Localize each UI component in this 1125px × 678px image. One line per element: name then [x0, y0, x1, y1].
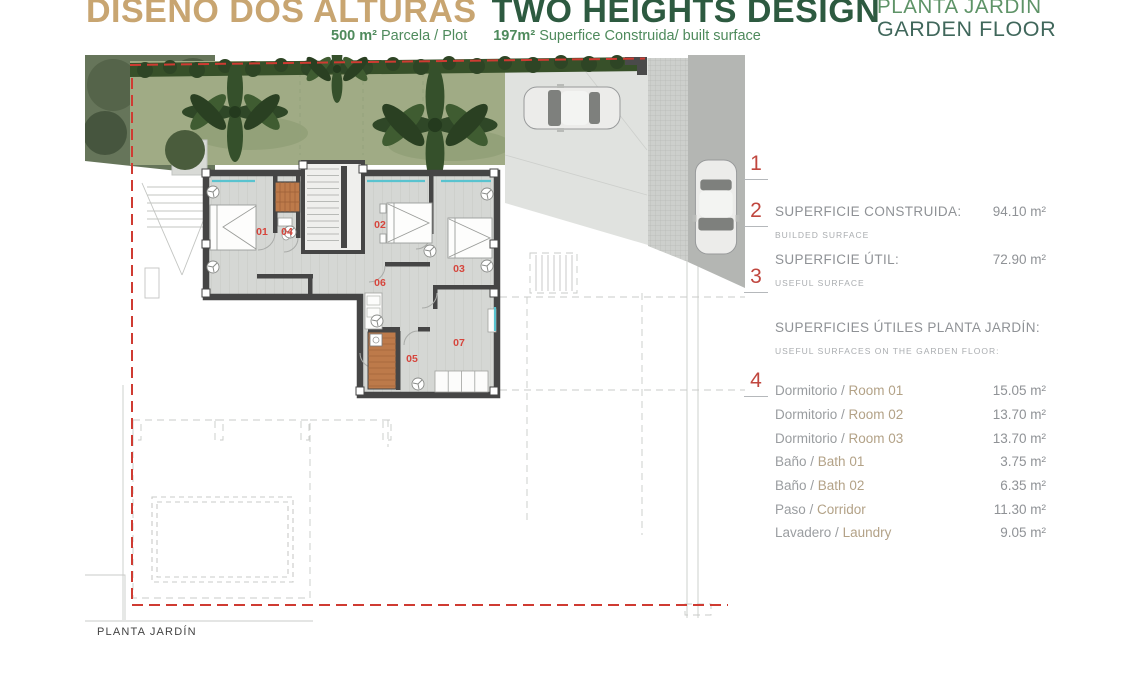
index-marker-2: 2: [744, 200, 768, 227]
car-parked-side: [692, 160, 739, 254]
useful-surface-label: SUPERFICIE ÚTIL:: [775, 252, 899, 267]
room-label-01: 01: [256, 226, 268, 238]
room-value-4: 3.75 m²: [1000, 454, 1046, 469]
built-surface-sublabel: BUILDED SURFACE: [775, 230, 869, 240]
bed-room-02: [380, 203, 432, 243]
house: 01 04 02 03 06 05 07: [202, 161, 498, 395]
room-row-1: Dormitorio / Room 01: [775, 383, 903, 398]
room-label-03: 03: [453, 263, 465, 275]
built-surface-label: SUPERFICIE CONSTRUIDA:: [775, 204, 962, 219]
room-value-5: 6.35 m²: [1000, 478, 1046, 493]
room-row-7: Lavadero / Laundry: [775, 525, 891, 540]
room-row-5: Baño / Bath 02: [775, 478, 864, 493]
plan-caption: PLANTA JARDÍN: [97, 626, 197, 638]
bed-room-03: [448, 218, 492, 258]
room-row-2: Dormitorio / Room 02: [775, 407, 903, 422]
room-value-2: 13.70 m²: [993, 407, 1046, 422]
title-english: TWO HEIGHTS DESIGN: [492, 0, 881, 31]
room-row-4: Baño / Bath 01: [775, 454, 864, 469]
room-label-06: 06: [374, 277, 386, 289]
built-size: 197m² Superfice Construida/ built surfac…: [493, 28, 761, 44]
room-label-04: 04: [281, 226, 293, 238]
floor-title: PLANTA JARDIN GARDEN FLOOR: [877, 0, 1056, 40]
laundry-floor: [368, 332, 396, 389]
plot-size: 500 m² Parcela / Plot: [331, 28, 467, 44]
title-spanish: DISEÑO DOS ALTURAS: [86, 0, 477, 31]
room-label-07: 07: [453, 337, 465, 349]
room-value-3: 13.70 m²: [993, 431, 1046, 446]
section-title: SUPERFICIES ÚTILES PLANTA JARDÍN:: [775, 320, 1040, 335]
room-row-3: Dormitorio / Room 03: [775, 431, 903, 446]
car-parked-top: [524, 84, 620, 132]
useful-surface-value: 72.90 m²: [993, 252, 1046, 267]
side-stair: [536, 255, 572, 291]
room-value-6: 11.30 m²: [994, 502, 1046, 517]
bed-room-01: [210, 205, 256, 250]
plan-sheet: DISEÑO DOS ALTURAS TWO HEIGHTS DESIGN 50…: [0, 0, 1125, 678]
index-marker-1: 1: [744, 153, 768, 180]
floor-title-en: GARDEN FLOOR: [877, 18, 1056, 41]
room-value-7: 9.05 m²: [1000, 525, 1046, 540]
room-row-6: Paso / Corridor: [775, 502, 866, 517]
floor-title-es: PLANTA JARDIN: [877, 0, 1056, 18]
driveway: [505, 58, 648, 245]
section-subtitle: USEFUL SURFACES ON THE GARDEN FLOOR:: [775, 346, 999, 356]
page-title: DISEÑO DOS ALTURAS TWO HEIGHTS DESIGN: [86, 0, 880, 31]
room-label-02: 02: [374, 219, 386, 231]
index-marker-3: 3: [744, 266, 768, 293]
built-surface-value: 94.10 m²: [993, 204, 1046, 219]
pool-outline: [152, 497, 293, 582]
floor-plan-drawing: 01 04 02 03 06 05 07: [85, 55, 745, 628]
paver-strip: [648, 58, 688, 262]
header-subline: 500 m² Parcela / Plot 197m² Superfice Co…: [331, 28, 761, 44]
index-marker-4: 4: [744, 370, 768, 397]
room-label-05: 05: [406, 353, 418, 365]
room-value-1: 15.05 m²: [993, 383, 1046, 398]
useful-surface-sublabel: USEFUL SURFACE: [775, 278, 865, 288]
